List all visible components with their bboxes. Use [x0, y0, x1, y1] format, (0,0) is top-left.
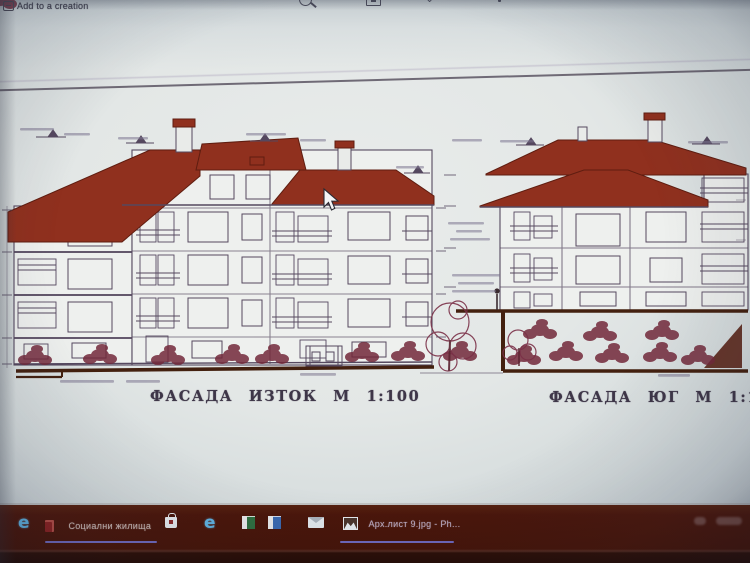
taskbar-edge-icon-2[interactable]: e [204, 513, 216, 539]
edge-icon: e [18, 513, 30, 533]
edit-pen-icon[interactable] [498, 0, 501, 2]
taskbar-excel-button[interactable] [242, 513, 255, 539]
photos-icon [343, 517, 358, 530]
taskbar-edge-icon-1[interactable]: e [18, 513, 30, 539]
taskbar-word-button[interactable] [268, 513, 281, 539]
add-to-creation-button[interactable]: Add to a creation [17, 1, 88, 11]
east-facade-title: ФАСАДА ИЗТОК М 1:100 [150, 388, 420, 405]
taskbar-top-line [0, 503, 750, 505]
red-document-icon [45, 520, 54, 532]
mail-icon [308, 517, 324, 528]
taskbar-window2-label: Арх.лист 9.jpg - Ph... [368, 519, 460, 529]
tray-icon-faint[interactable] [694, 517, 706, 525]
screen-photo: Add to a creation ⌄ [0, 0, 750, 563]
store-icon [165, 517, 177, 528]
word-icon [268, 516, 281, 529]
taskbar-window-social-housing[interactable]: Социални жилища [45, 517, 151, 543]
edge-icon: e [204, 513, 216, 533]
windows-taskbar: e Социални жилища e Арх.лист 9.jpg - Ph.… [0, 505, 750, 563]
add-to-creation-icon [3, 1, 14, 11]
south-facade-title: ФАСАДА ЮГ М 1:100 [549, 389, 750, 406]
slideshow-icon[interactable] [366, 0, 381, 6]
chevron-icon[interactable]: ⌄ [425, 0, 434, 5]
architectural-drawing-image[interactable] [0, 0, 750, 563]
taskbar-window-photos[interactable]: Арх.лист 9.jpg - Ph... [343, 515, 460, 541]
active-window-underline [45, 541, 157, 543]
excel-icon [242, 516, 255, 529]
active-window-underline [340, 541, 454, 543]
taskbar-store-button[interactable] [165, 513, 177, 539]
tray-icon-faint[interactable] [716, 517, 742, 525]
taskbar-mail-button[interactable] [308, 513, 324, 539]
taskbar-window1-label: Социални жилища [68, 521, 151, 531]
